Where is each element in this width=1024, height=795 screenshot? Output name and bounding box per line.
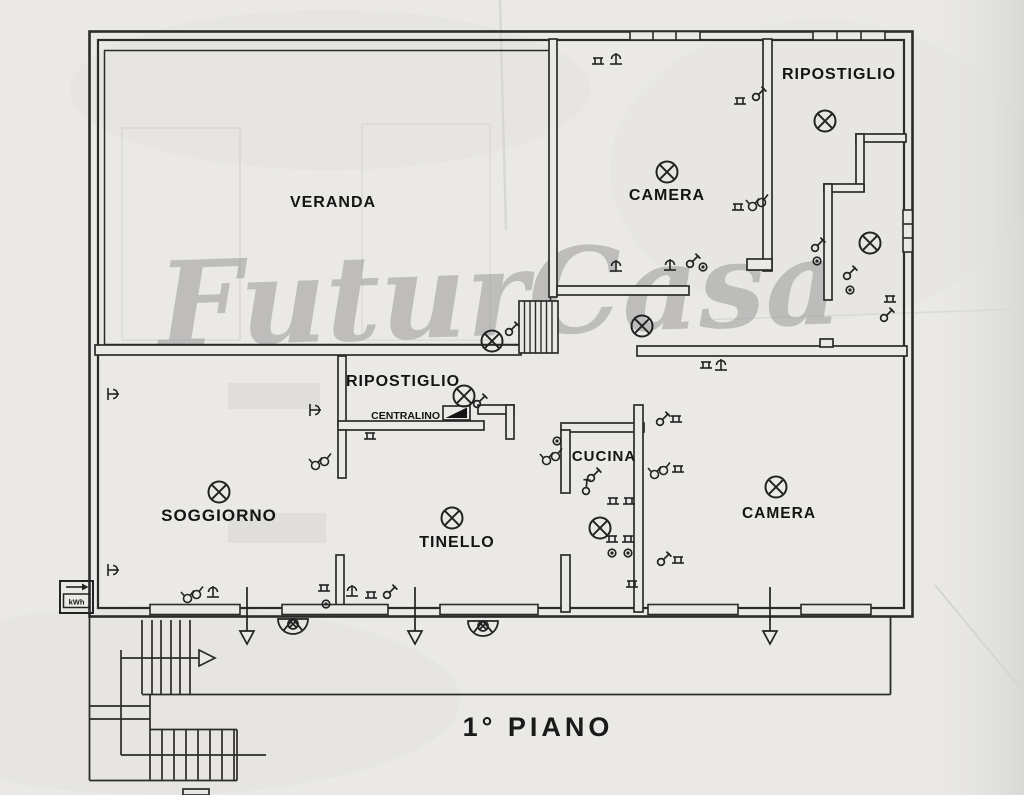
ceiling-light-icon xyxy=(442,508,463,529)
socket-icon xyxy=(607,498,619,504)
floor-plan-drawing: FuturCasa xyxy=(0,0,1024,795)
socket-icon xyxy=(365,592,377,598)
electric-meter: kWh xyxy=(60,581,93,613)
paper-texture xyxy=(0,0,1024,795)
socket-icon xyxy=(715,359,727,370)
meter-arrow-icon xyxy=(82,584,89,591)
socket-icon xyxy=(622,536,634,542)
wall-lamp-icon xyxy=(468,621,498,636)
centralino-label: CENTRALINO xyxy=(371,410,440,422)
socket-icon xyxy=(700,362,712,368)
room-label-ripostiglio-center: RIPOSTIGLIO xyxy=(346,373,460,390)
ceiling-light-icon xyxy=(766,477,787,498)
socket-icon xyxy=(672,466,684,472)
floor-plan-scan: FuturCasa xyxy=(0,0,1024,795)
switch-group-icon xyxy=(648,463,670,479)
socket-icon xyxy=(318,585,330,591)
switch-icon xyxy=(384,585,398,599)
room-label-soggiorno: SOGGIORNO xyxy=(161,506,277,525)
switch-group-icon xyxy=(309,454,331,470)
room-label-veranda: VERANDA xyxy=(290,194,376,211)
room-label-tinello: TINELLO xyxy=(419,534,494,551)
socket-icon xyxy=(207,586,219,597)
room-label-camera-top: CAMERA xyxy=(629,187,705,204)
socket-icon xyxy=(108,388,119,400)
button-icon xyxy=(553,437,561,445)
socket-icon xyxy=(108,564,119,576)
floor-title: 1° PIANO xyxy=(463,712,614,742)
socket-icon xyxy=(670,416,682,422)
ceiling-light-icon xyxy=(209,482,230,503)
room-label-camera-bottom: CAMERA xyxy=(742,505,816,522)
socket-icon xyxy=(610,53,622,64)
button-icon xyxy=(608,549,616,557)
socket-icon xyxy=(346,585,358,596)
switch-icon xyxy=(658,552,672,566)
centralino-unit: CENTRALINO xyxy=(371,406,470,422)
button-icon xyxy=(624,549,632,557)
room-label-cucina: CUCINA xyxy=(572,448,636,465)
socket-icon xyxy=(606,536,618,542)
switch-group-icon xyxy=(181,587,203,603)
switch-icon xyxy=(657,412,671,426)
socket-icon xyxy=(672,557,684,563)
socket-icon xyxy=(364,433,376,439)
upper-stair-hatch xyxy=(519,301,558,353)
switch-group-icon xyxy=(540,449,562,465)
meter-label: kWh xyxy=(69,598,85,607)
room-label-ripostiglio-top: RIPOSTIGLIO xyxy=(782,66,896,83)
socket-icon xyxy=(592,58,604,64)
